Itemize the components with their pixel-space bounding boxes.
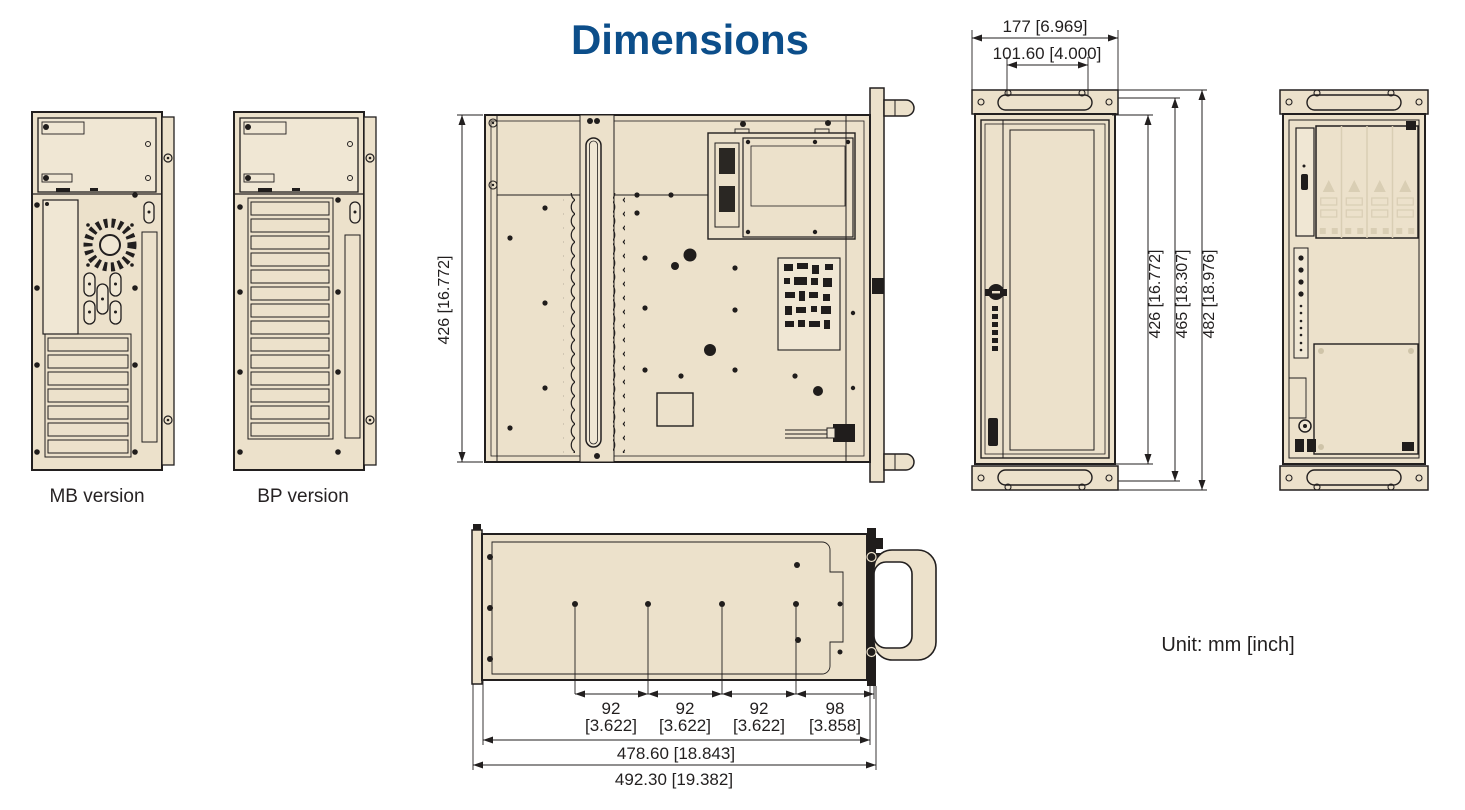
front-view-open bbox=[1280, 90, 1428, 490]
usb-port bbox=[1307, 439, 1316, 452]
dim-bottom-width-overall-label: 492.30 [19.382] bbox=[615, 770, 733, 789]
dim-front-width-handle-label: 101.60 [4.000] bbox=[993, 44, 1102, 63]
io-shield bbox=[43, 200, 78, 334]
front-bezel-edge bbox=[472, 530, 482, 684]
bottom-view: 92 [3.622] 92 [3.622] 92 [3.622] 98 [3.8… bbox=[472, 524, 936, 789]
dim-front-width-handle: 101.60 [4.000] bbox=[993, 44, 1102, 95]
dim-hole-spacing: 92 [3.622] 92 [3.622] 92 [3.622] 98 [3.8… bbox=[575, 694, 874, 735]
dim-top-depth: 426 [16.772] bbox=[436, 115, 483, 462]
dim-seg2-in: [3.622] bbox=[659, 716, 711, 735]
dim-bottom-width-overall: 492.30 [19.382] bbox=[473, 684, 876, 789]
chassis-drawings: 426 [16.772] bbox=[0, 0, 1465, 810]
rear-view-bp bbox=[234, 112, 376, 470]
handle bbox=[998, 95, 1092, 110]
handle bbox=[998, 470, 1092, 485]
dim-front-width-outer-label: 177 [6.969] bbox=[1002, 17, 1087, 36]
drive-bay bbox=[708, 129, 855, 239]
dim-top-depth-label: 426 [16.772] bbox=[436, 256, 453, 345]
led-panel bbox=[1294, 248, 1308, 358]
psu-area bbox=[240, 118, 358, 192]
handle bbox=[884, 100, 914, 116]
front-view-closed: 177 [6.969] 101.60 [4.000] 426 [16.772] … bbox=[972, 17, 1218, 490]
dim-seg3-in: [3.622] bbox=[733, 716, 785, 735]
dim-front-height-body-label: 465 [18.307] bbox=[1174, 250, 1191, 339]
dim-seg4-in: [3.858] bbox=[809, 716, 861, 735]
emi-finger-strip bbox=[563, 193, 575, 453]
dim-front-height-door-label: 426 [16.772] bbox=[1147, 250, 1164, 339]
psu-area bbox=[38, 118, 156, 192]
dim-front-height-overall: 482 [18.976] bbox=[1118, 90, 1218, 490]
handle bbox=[884, 454, 914, 470]
emi-finger-strip bbox=[613, 193, 625, 453]
dim-front-height-overall-label: 482 [18.976] bbox=[1201, 250, 1218, 339]
top-view: 426 [16.772] bbox=[436, 88, 914, 482]
optical-drive bbox=[1296, 128, 1314, 236]
door-slot bbox=[988, 418, 998, 446]
pcb bbox=[778, 258, 840, 350]
usb-port bbox=[1295, 439, 1304, 452]
side-flange bbox=[162, 117, 174, 465]
rear-view-mb bbox=[32, 112, 174, 470]
handle bbox=[1307, 470, 1401, 485]
dim-front-height-door: 426 [16.772] bbox=[1112, 115, 1164, 464]
dim-bottom-width-body-label: 478.60 [18.843] bbox=[617, 744, 735, 763]
dimensions-figure: Dimensions MB version BP version Unit: m… bbox=[0, 0, 1465, 810]
dim-seg1-in: [3.622] bbox=[585, 716, 637, 735]
power-button bbox=[1299, 420, 1311, 432]
side-flange bbox=[364, 117, 376, 465]
center-rail bbox=[580, 115, 614, 462]
handle bbox=[874, 550, 936, 660]
rear-connector bbox=[872, 278, 884, 294]
handle bbox=[1307, 95, 1401, 110]
